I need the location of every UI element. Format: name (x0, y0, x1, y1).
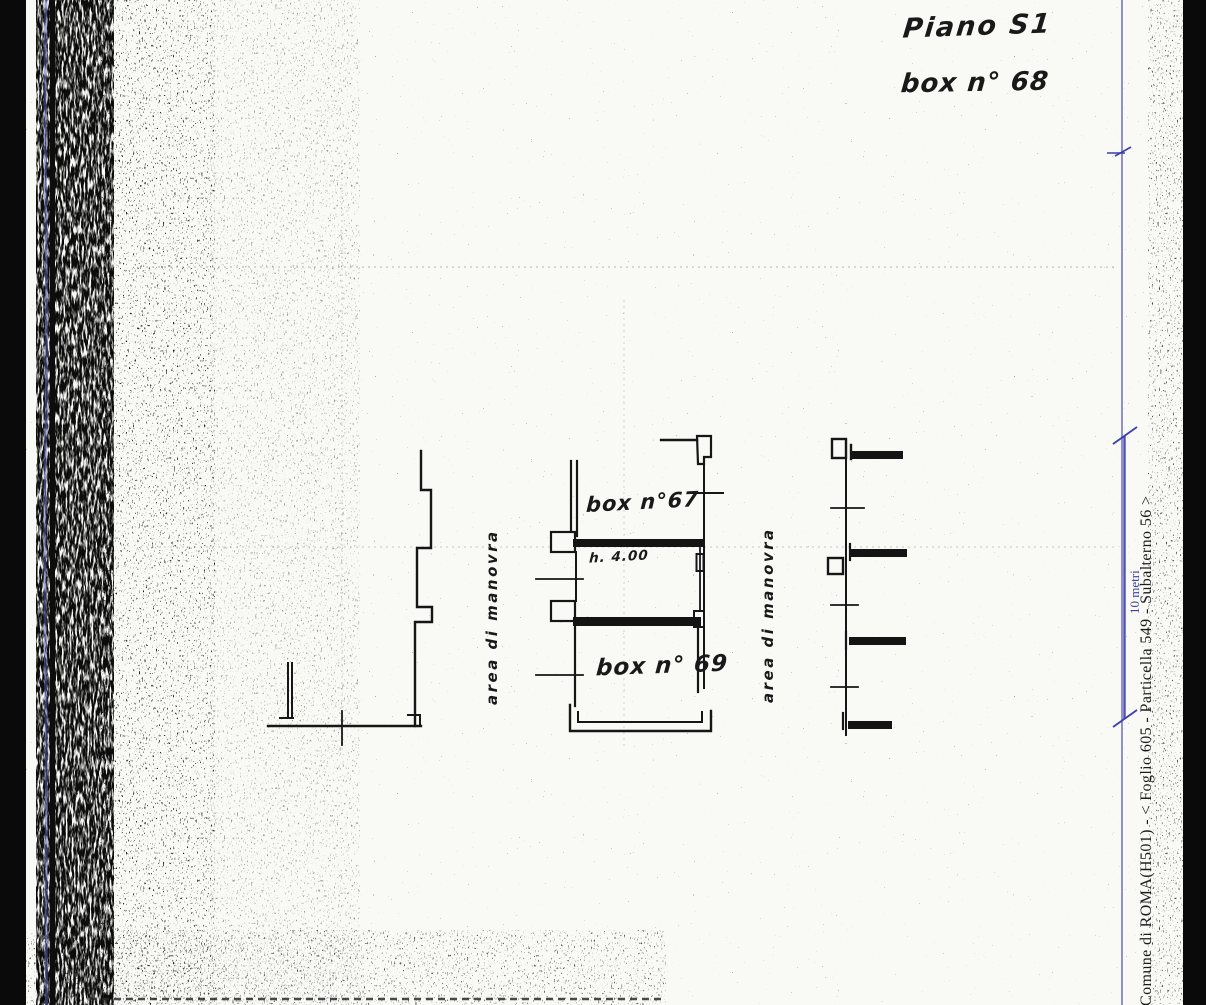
thick-wall-stub (849, 637, 906, 645)
room-label-box69: box n° 69 (595, 653, 729, 681)
maneuver-area-label-left: area di manovra (485, 490, 500, 705)
scanned-cadastral-plan-page: Piano S1 box n° 68 box n°67 h. 4.00 box … (0, 0, 1206, 1005)
thick-wall (573, 617, 701, 626)
wall-jamb-block (551, 601, 575, 621)
thick-wall-stub (851, 451, 903, 459)
thick-wall-stub (850, 549, 907, 557)
blue-scan-streak (45, 0, 47, 1005)
thick-wall (573, 539, 704, 547)
unit-label: box n° 68 (900, 69, 1050, 98)
maneuver-area-label-right: area di manovra (761, 488, 776, 703)
ceiling-height-label: h. 4.00 (589, 549, 649, 566)
scale-label: 10 metri (1128, 552, 1141, 614)
thick-wall-stub (848, 721, 892, 729)
wall-jamb-block (551, 532, 575, 552)
floor-label: Piano S1 (902, 10, 1053, 42)
right-margin-bar (1183, 0, 1206, 1005)
cadastral-margin-text: Comune di ROMA(H501) - < Foglio 605 - Pa… (1139, 406, 1155, 1005)
